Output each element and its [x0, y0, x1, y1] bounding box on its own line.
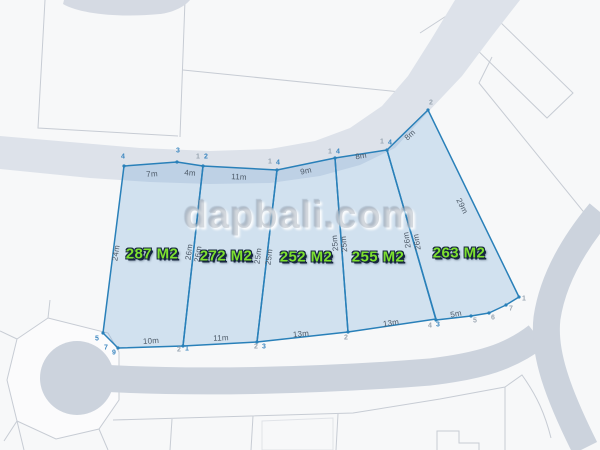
corner-marker: 4 — [428, 323, 432, 330]
parcel2-top-measure: 11m — [231, 172, 247, 182]
corner-marker: 3 — [262, 344, 266, 351]
corner-marker: 4 — [121, 154, 125, 161]
parcel3-bottom-measure: 13m — [293, 329, 310, 339]
parcel2-bottom-measure: 11m — [213, 333, 229, 343]
parcel1-bottom-measure: 10m — [143, 336, 160, 346]
parcel4-left-measure: 25m — [339, 236, 349, 253]
watermark: dapbali.com — [184, 195, 417, 238]
corner-marker: 2 — [177, 347, 181, 354]
corner-marker: 4 — [276, 160, 280, 167]
parcel1-top-measure-b: 4m — [184, 168, 196, 178]
cul-de-sac-circle — [40, 341, 114, 415]
land-plot-site-plan: dapbali.com 7m 4m 11m 9m 8m 8m 10m 11m 1… — [0, 0, 600, 450]
parcel5-area-label: 263 M2 — [433, 245, 485, 262]
corner-marker: 1 — [328, 149, 332, 156]
corner-marker: 4 — [336, 149, 340, 156]
corner-marker: 7 — [509, 306, 513, 313]
parcel1-area-label: 287 M2 — [126, 246, 178, 263]
corner-marker: 5 — [473, 318, 477, 325]
corner-marker: 1 — [196, 154, 200, 161]
corner-marker: 2 — [204, 154, 208, 161]
corner-marker: 7 — [104, 345, 108, 352]
parcel4-area-label: 255 M2 — [352, 249, 404, 266]
corner-marker: 3 — [176, 148, 180, 155]
parcel4-top-measure: 8m — [355, 151, 368, 162]
parcel2-area-label: 272 M2 — [200, 248, 252, 265]
corner-marker: 1 — [185, 346, 189, 353]
corner-marker: 6 — [491, 315, 495, 322]
corner-marker: 1 — [268, 159, 272, 166]
corner-marker: 5 — [95, 336, 99, 343]
corner-marker: 1 — [522, 296, 526, 303]
corner-marker: 9 — [112, 350, 116, 357]
corner-marker: 2 — [344, 335, 348, 342]
parcel3-area-label: 252 M2 — [280, 249, 332, 266]
parcel1-top-measure-a: 7m — [146, 169, 158, 179]
corner-marker: 4 — [388, 140, 392, 147]
corner-marker: 1 — [380, 139, 384, 146]
corner-marker: 2 — [254, 344, 258, 351]
corner-marker: 2 — [429, 100, 433, 107]
corner-marker: 3 — [436, 322, 440, 329]
